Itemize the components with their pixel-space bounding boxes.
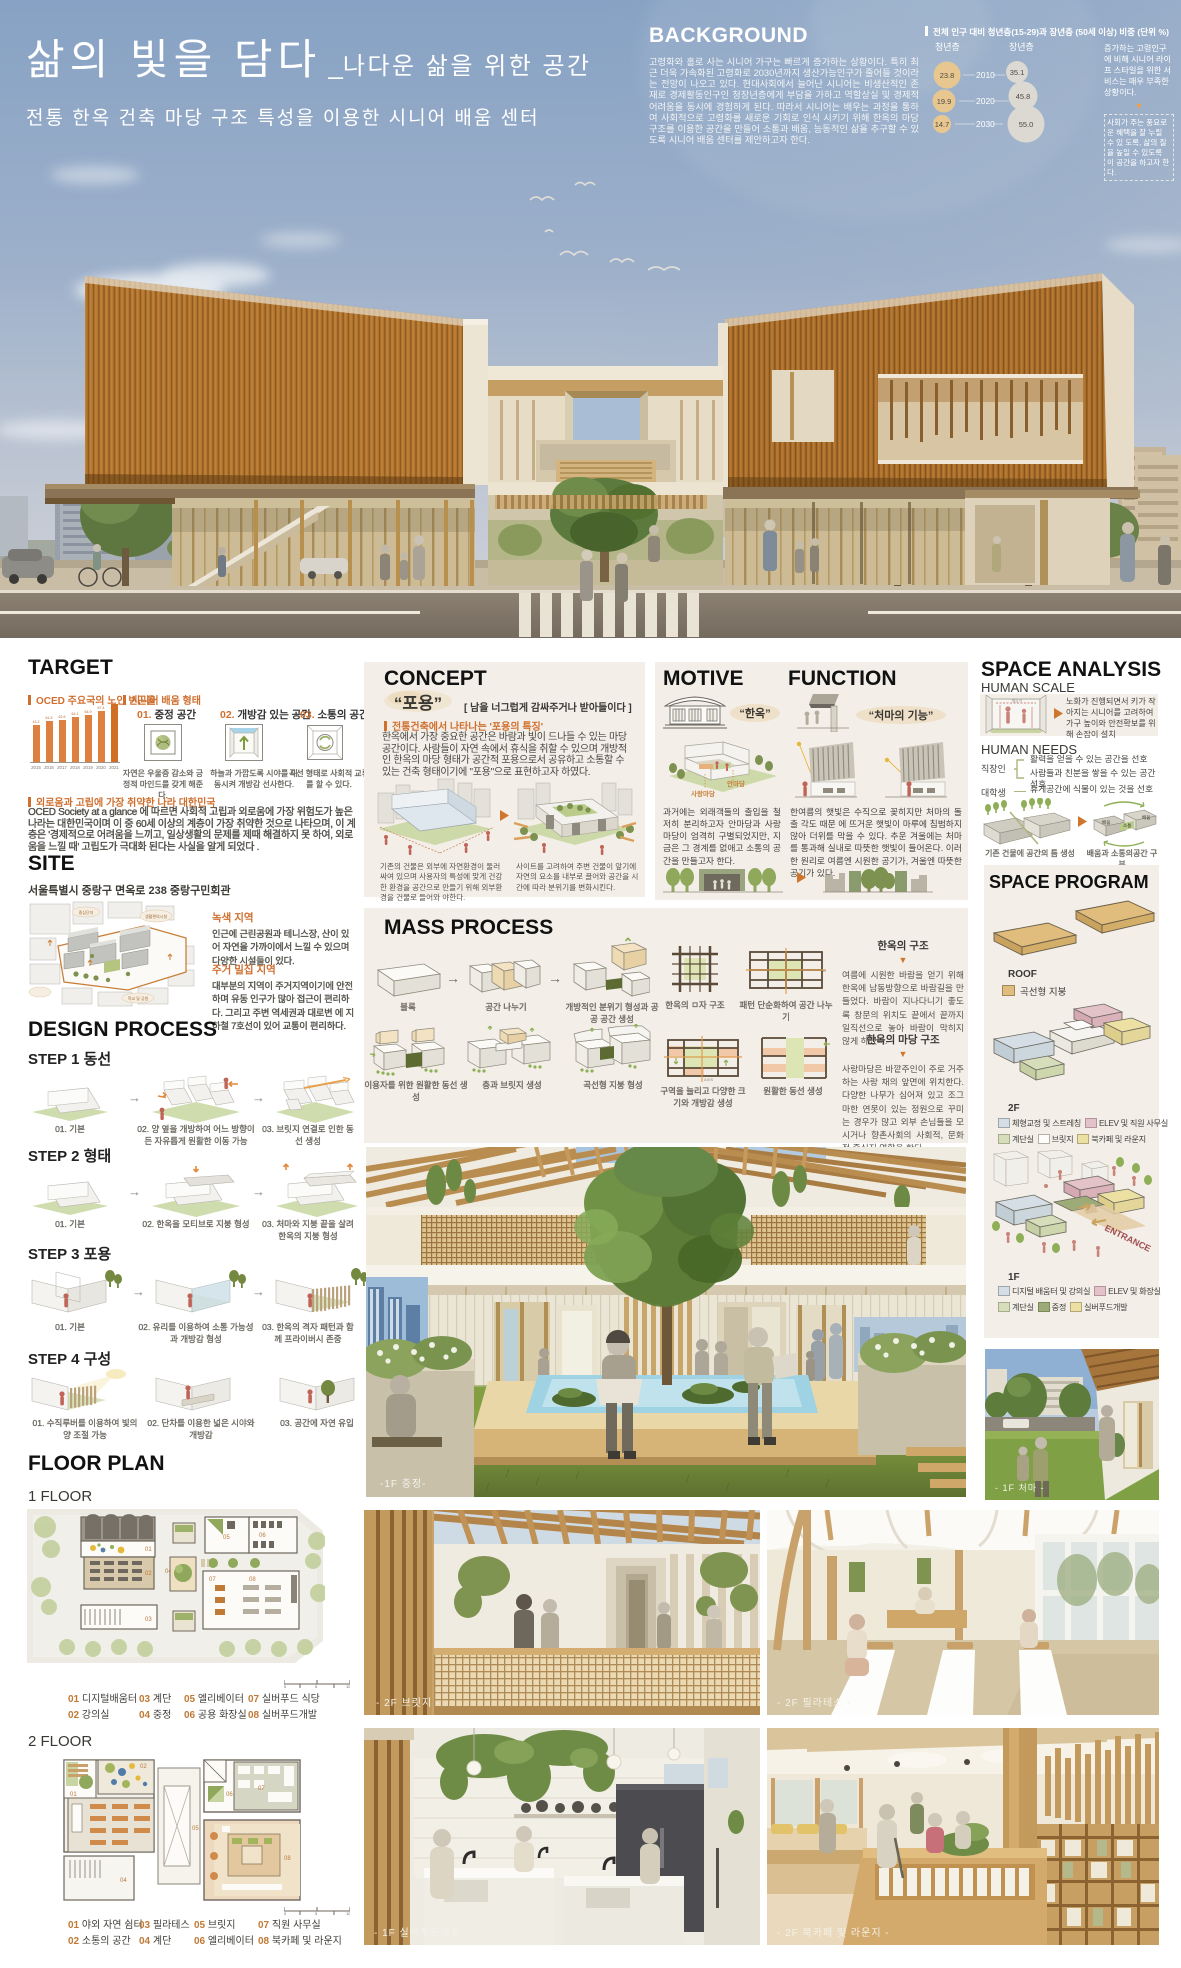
svg-text:08: 08 <box>249 1577 256 1583</box>
svg-text:2010: 2010 <box>976 70 995 80</box>
svg-text:중심단지: 중심단지 <box>79 909 94 915</box>
svg-text:생활편의시설: 생활편의시설 <box>145 913 167 919</box>
svg-text:05: 05 <box>223 1535 230 1541</box>
svg-text:04: 04 <box>120 1878 127 1884</box>
svg-text:2015: 2015 <box>31 765 41 770</box>
svg-text:07: 07 <box>258 1786 265 1792</box>
svg-text:01: 01 <box>145 1547 152 1553</box>
svg-text:- 1F 실버푸드개발 -: - 1F 실버푸드개발 - <box>374 1927 469 1939</box>
svg-text:23.8: 23.8 <box>940 71 955 80</box>
svg-text:0: 0 <box>284 1684 287 1689</box>
svg-text:14.7: 14.7 <box>935 120 950 129</box>
svg-text:- 2F 필라테스 -: - 2F 필라테스 - <box>777 1697 851 1709</box>
svg-text:2020: 2020 <box>976 96 995 106</box>
svg-text:2016: 2016 <box>44 765 54 770</box>
svg-text:02: 02 <box>145 1571 152 1577</box>
svg-text:전체 인구 대비 청년층(15-29)과 장년층 (50세: 전체 인구 대비 청년층(15-29)과 장년층 (50세 이상) 비중 (단위… <box>933 26 1169 37</box>
svg-text:- 1F 처마 -: - 1F 처마 - <box>995 1482 1045 1493</box>
svg-text:64.9: 64.9 <box>85 710 92 714</box>
svg-text:평균 키: 평균 키 <box>1012 698 1022 703</box>
svg-text:학교 및 공원: 학교 및 공원 <box>128 995 149 1001</box>
svg-text:55.0: 55.0 <box>1019 120 1034 129</box>
svg-text:사랑마당: 사랑마당 <box>691 789 715 798</box>
svg-text:AXIS: AXIS <box>823 968 826 973</box>
svg-text:2017: 2017 <box>57 765 67 770</box>
svg-text:62.6: 62.6 <box>59 715 66 719</box>
svg-text:소통: 소통 <box>1123 823 1131 828</box>
svg-text:배움: 배움 <box>1142 814 1150 821</box>
svg-text:- 2F 북카페 및 라운지 -: - 2F 북카페 및 라운지 - <box>777 1927 890 1939</box>
svg-text:장년층: 장년층 <box>1009 42 1034 52</box>
svg-text:01: 01 <box>70 1792 77 1798</box>
svg-text:AXIS: AXIS <box>704 1077 713 1082</box>
svg-text:2020: 2020 <box>96 765 106 770</box>
svg-text:19.9: 19.9 <box>937 97 952 106</box>
svg-text:07: 07 <box>209 1577 216 1583</box>
svg-text:2018: 2018 <box>70 765 80 770</box>
svg-text:06: 06 <box>259 1533 266 1539</box>
svg-text:06: 06 <box>226 1792 233 1798</box>
svg-text:- 2F 브릿지 -: - 2F 브릿지 - <box>376 1697 440 1709</box>
svg-text:61.5: 61.5 <box>46 716 53 720</box>
svg-text:05: 05 <box>192 1826 199 1832</box>
svg-text:10: 10 <box>346 1911 350 1916</box>
svg-text:03: 03 <box>145 1617 152 1623</box>
svg-text:안마당: 안마당 <box>727 779 745 788</box>
svg-text:배움: 배움 <box>1102 819 1110 826</box>
svg-text:43.2: 43.2 <box>33 720 40 724</box>
svg-text:64.1: 64.1 <box>72 712 79 716</box>
svg-text:청년층: 청년층 <box>935 42 960 52</box>
svg-text:68.1 %: 68.1 % <box>108 702 120 703</box>
svg-text:2021: 2021 <box>109 765 119 770</box>
svg-text:67.4: 67.4 <box>98 706 105 710</box>
svg-text:08: 08 <box>284 1856 291 1862</box>
svg-text:5: 5 <box>315 1684 318 1689</box>
svg-text:10: 10 <box>346 1684 350 1689</box>
svg-text:02: 02 <box>140 1764 147 1770</box>
svg-text:-1F 중정-: -1F 중정- <box>380 1478 427 1490</box>
svg-text:35.1: 35.1 <box>1010 68 1025 77</box>
svg-text:2019: 2019 <box>83 765 93 770</box>
svg-text:2030: 2030 <box>976 119 995 129</box>
svg-text:45.8: 45.8 <box>1016 92 1031 101</box>
